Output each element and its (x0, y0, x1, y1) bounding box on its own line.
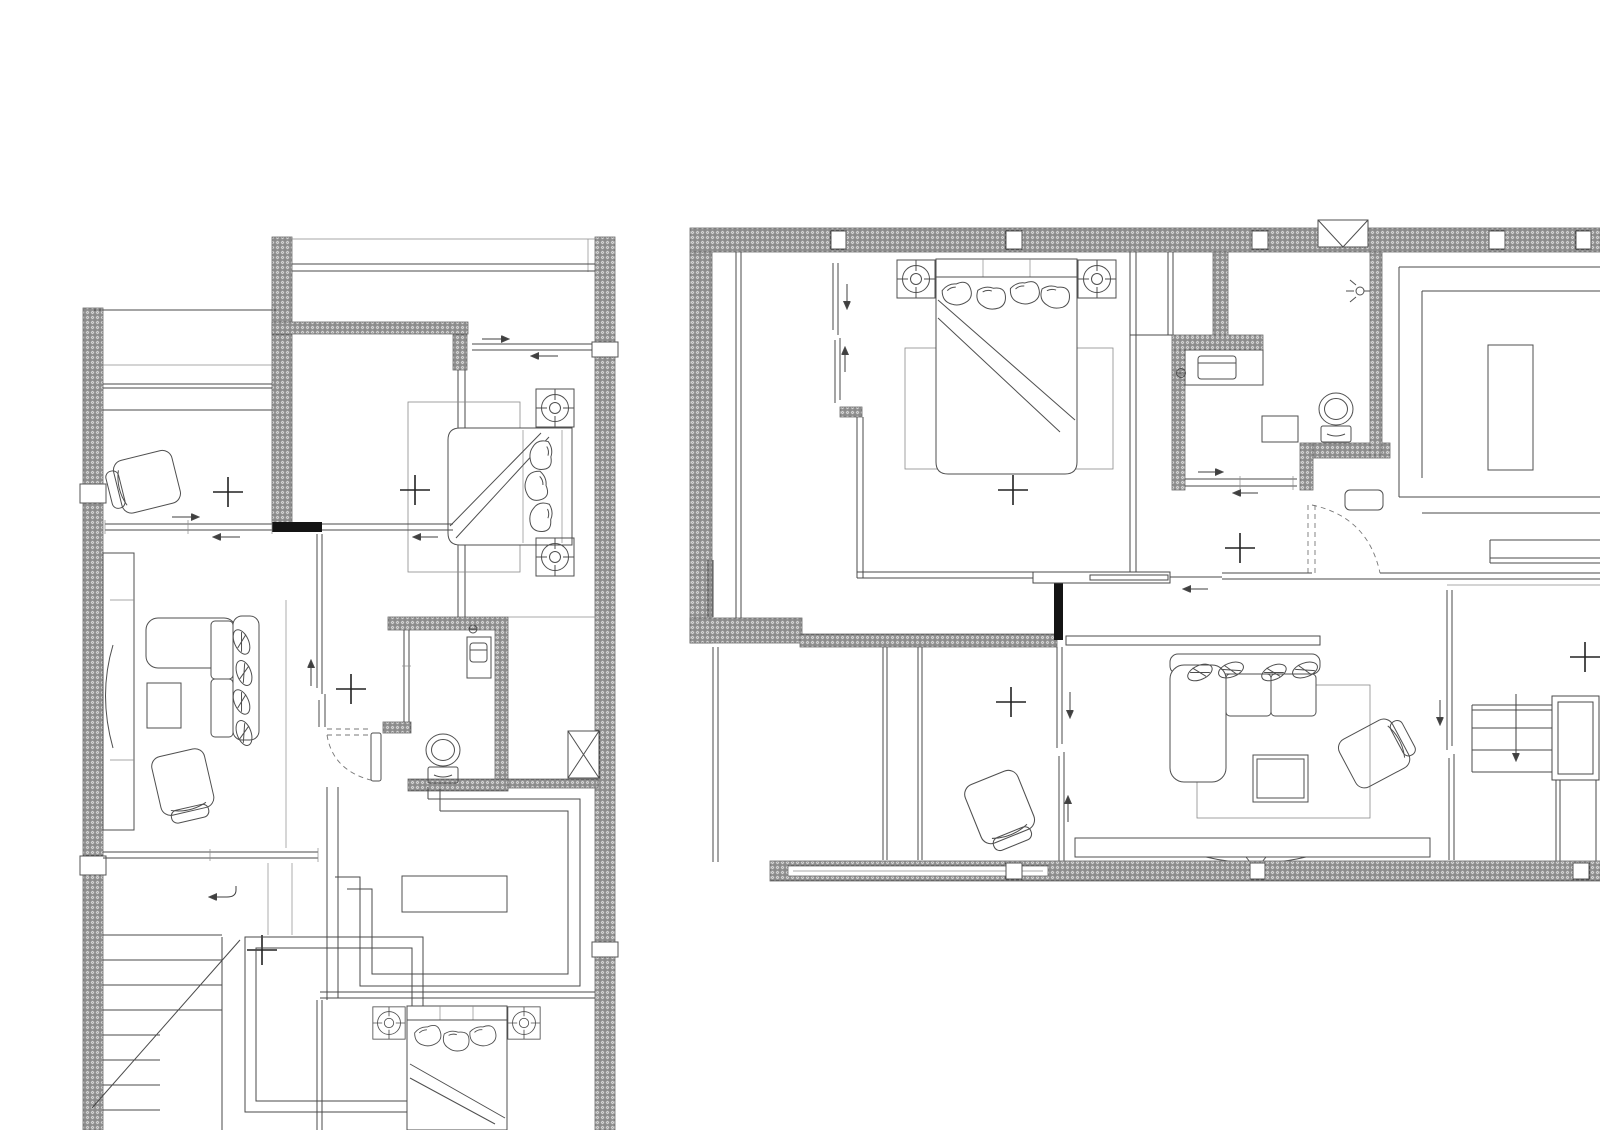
wall-shaft-bottom (508, 779, 598, 788)
column-blockout (1006, 863, 1022, 879)
column-blockout (1252, 231, 1268, 249)
double-bed (448, 428, 572, 545)
wall-left-exterior (690, 252, 712, 643)
column-blockout (831, 231, 846, 249)
wall-left-bottom-cap (690, 618, 802, 643)
wall-washroom-top (1172, 335, 1263, 350)
column-blockout (80, 484, 106, 503)
wall-right-exterior (595, 237, 615, 1130)
wall-partition-cap (840, 407, 862, 417)
column-blockout (592, 942, 618, 957)
wall-bath-L-vertical (1300, 443, 1313, 490)
sheet-background (0, 0, 1600, 1130)
wall-washroom-vertical (1213, 252, 1228, 335)
balcony-bottom (770, 861, 1600, 881)
door-leaf (371, 733, 381, 781)
column-blockout (1006, 231, 1022, 249)
column-blockout (1250, 863, 1265, 879)
wall-bath-top (388, 617, 508, 630)
solid-wall-bar (272, 522, 322, 532)
vent-box-top (1318, 220, 1368, 247)
wall-left-exterior (83, 308, 103, 1130)
double-bed (936, 259, 1077, 474)
column-blockout (592, 342, 618, 357)
wall-bath-right (495, 630, 508, 790)
column-blockout (1573, 863, 1589, 879)
wall-interior-L-vertical (453, 334, 467, 370)
wall-door-stub (383, 722, 411, 733)
column-blockout (1489, 231, 1505, 249)
wall-top-exterior (690, 228, 1600, 252)
column-blockout (1576, 231, 1591, 249)
solid-wall-bar (1054, 583, 1063, 640)
wall-bedroom-south (800, 634, 1057, 647)
wall-top-left-vertical (272, 237, 292, 524)
double-bed (407, 1006, 507, 1130)
floor-plan-sheet (0, 0, 1600, 1130)
wall-washroom-left (1172, 350, 1185, 490)
wall-bath-right (1370, 252, 1382, 455)
column-blockout (80, 856, 106, 875)
vent-shaft-box (568, 731, 599, 778)
wall-interior-L-horizontal (272, 322, 468, 334)
